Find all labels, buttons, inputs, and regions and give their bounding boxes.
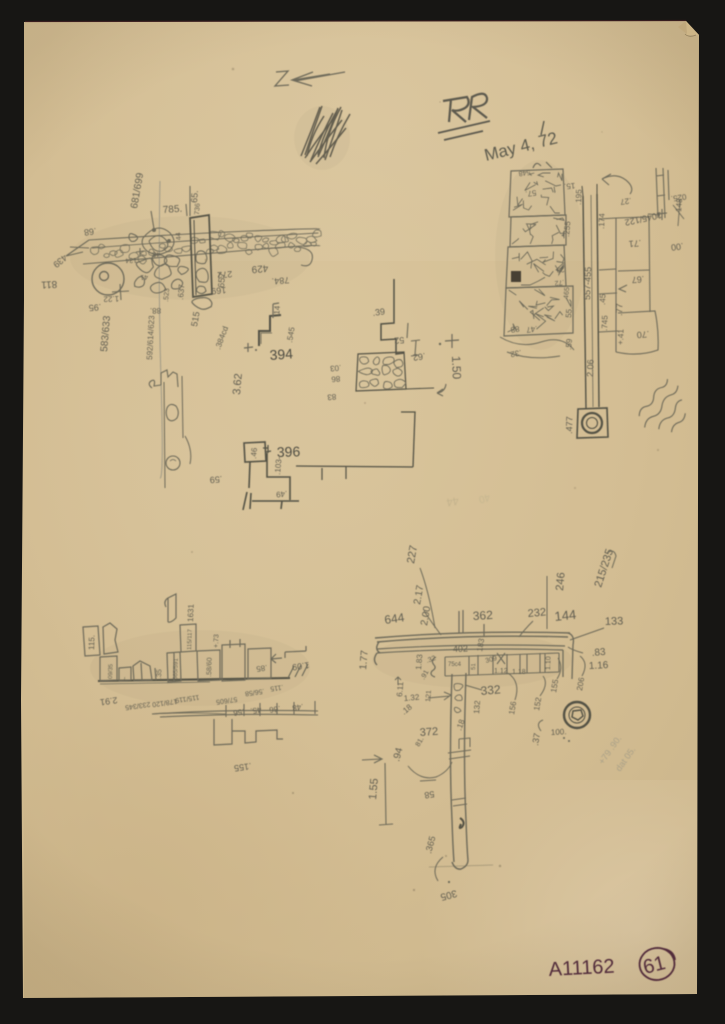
svg-text:.59: .59	[564, 338, 574, 350]
svg-text:.745: .745	[600, 315, 610, 331]
svg-text:.45: .45	[598, 293, 607, 305]
svg-text:1.77: 1.77	[358, 649, 371, 670]
svg-text:58: 58	[424, 789, 435, 800]
svg-text:394: 394	[269, 345, 294, 363]
svg-text:.66: .66	[268, 704, 281, 715]
svg-text:.255: .255	[562, 220, 572, 237]
svg-text:736: 736	[194, 203, 202, 215]
svg-text:232: 232	[527, 606, 546, 620]
svg-text:.62: .62	[412, 351, 426, 363]
svg-text:1631: 1631	[186, 603, 196, 622]
svg-text:.37: .37	[530, 732, 542, 746]
svg-text:1.12: 1.12	[494, 668, 508, 675]
svg-text:45.: 45.	[250, 705, 262, 715]
svg-text:09/35: 09/35	[108, 663, 115, 679]
svg-text:1.83: 1.83	[414, 653, 424, 670]
svg-text:134: 134	[125, 256, 137, 263]
svg-text:169: 169	[211, 285, 227, 296]
svg-text:332: 332	[480, 682, 501, 698]
svg-text:.14: .14	[272, 305, 282, 317]
svg-text:144: 144	[554, 607, 577, 624]
svg-text:.77: .77	[614, 303, 624, 316]
svg-text:.71: .71	[628, 238, 641, 249]
svg-text:.03: .03	[329, 363, 341, 373]
svg-text:75c4: 75c4	[448, 662, 462, 668]
svg-text:272: 272	[217, 269, 233, 280]
svg-text:.67: .67	[631, 274, 644, 285]
svg-text:372: 372	[419, 726, 438, 739]
svg-text:55.: 55.	[564, 306, 574, 318]
svg-text:1.50: 1.50	[449, 356, 464, 380]
svg-text:+.73: +.73	[213, 634, 220, 648]
svg-text:57.: 57.	[525, 188, 537, 198]
svg-text:1.10: 1.10	[545, 656, 552, 670]
svg-text:402: 402	[453, 643, 468, 654]
svg-text:86: 86	[330, 374, 340, 384]
svg-text:.58/60: .58/60	[206, 657, 214, 677]
svg-text:1.22: 1.22	[103, 294, 119, 304]
svg-text:.637: .637	[176, 283, 186, 300]
svg-text:.83: .83	[591, 647, 606, 659]
svg-text:.46: .46	[249, 447, 259, 459]
svg-text:1.18: 1.18	[512, 669, 526, 676]
svg-text:429: 429	[251, 262, 269, 274]
svg-text:3.62: 3.62	[231, 373, 245, 395]
svg-text:.195: .195	[574, 189, 584, 205]
svg-text:.95: .95	[88, 302, 101, 313]
svg-text:115.: 115.	[87, 635, 97, 650]
svg-text:.56: .56	[232, 707, 245, 718]
svg-text:246: 246	[554, 572, 568, 591]
svg-text:1.32: 1.32	[403, 693, 420, 703]
svg-text:88.: 88.	[150, 306, 161, 315]
svg-text:.103-: .103-	[273, 456, 284, 475]
svg-text:.68: .68	[83, 226, 97, 238]
svg-text:51: 51	[471, 663, 477, 671]
svg-text:A11162: A11162	[548, 956, 615, 981]
svg-text:44: 44	[175, 232, 183, 240]
svg-text:.29: .29	[556, 265, 567, 273]
svg-text:1.16: 1.16	[589, 660, 609, 672]
svg-text:.39: .39	[372, 306, 386, 318]
svg-text:.27: .27	[619, 196, 632, 207]
svg-text:1.55: 1.55	[367, 778, 381, 800]
svg-text:.49: .49	[275, 489, 287, 499]
svg-text:.85: .85	[255, 663, 268, 674]
svg-text:.523: .523	[163, 288, 171, 302]
svg-text:.00: .00	[670, 241, 684, 253]
svg-text:.35: .35	[156, 669, 163, 679]
svg-text:.59: .59	[209, 474, 222, 485]
svg-text:784.: 784.	[271, 275, 289, 286]
svg-text:785.: 785.	[162, 204, 182, 216]
svg-text:100.: 100.	[551, 727, 567, 737]
svg-text:557-455: 557-455	[582, 267, 593, 300]
svg-text:362: 362	[472, 608, 493, 623]
svg-text:644: 644	[383, 610, 405, 627]
svg-text:48: 48	[152, 250, 160, 257]
svg-text:52: 52	[394, 335, 405, 346]
svg-text:115/117: 115/117	[187, 628, 194, 650]
svg-text:132: 132	[472, 700, 482, 715]
svg-text:.48: .48	[291, 702, 304, 713]
svg-text:811: 811	[40, 278, 57, 290]
svg-text:.174: .174	[597, 213, 607, 229]
svg-text:121: 121	[425, 690, 433, 702]
svg-text:.465: .465	[563, 287, 571, 301]
svg-text:+.41: +.41	[616, 328, 626, 345]
svg-text:.72: .72	[554, 278, 565, 286]
svg-text:41: 41	[140, 273, 148, 280]
svg-text:.47: .47	[525, 324, 538, 335]
svg-text:65.: 65.	[189, 190, 200, 203]
svg-text:148: 148	[674, 198, 684, 213]
svg-text:44: 44	[445, 494, 459, 508]
svg-text:565/591: 565/591	[173, 658, 180, 681]
svg-text:83: 83	[326, 392, 336, 402]
svg-text:.477: .477	[564, 416, 575, 434]
svg-text:133: 133	[605, 615, 624, 628]
svg-text:2.06: 2.06	[585, 359, 596, 377]
svg-text:.70: .70	[636, 329, 649, 340]
